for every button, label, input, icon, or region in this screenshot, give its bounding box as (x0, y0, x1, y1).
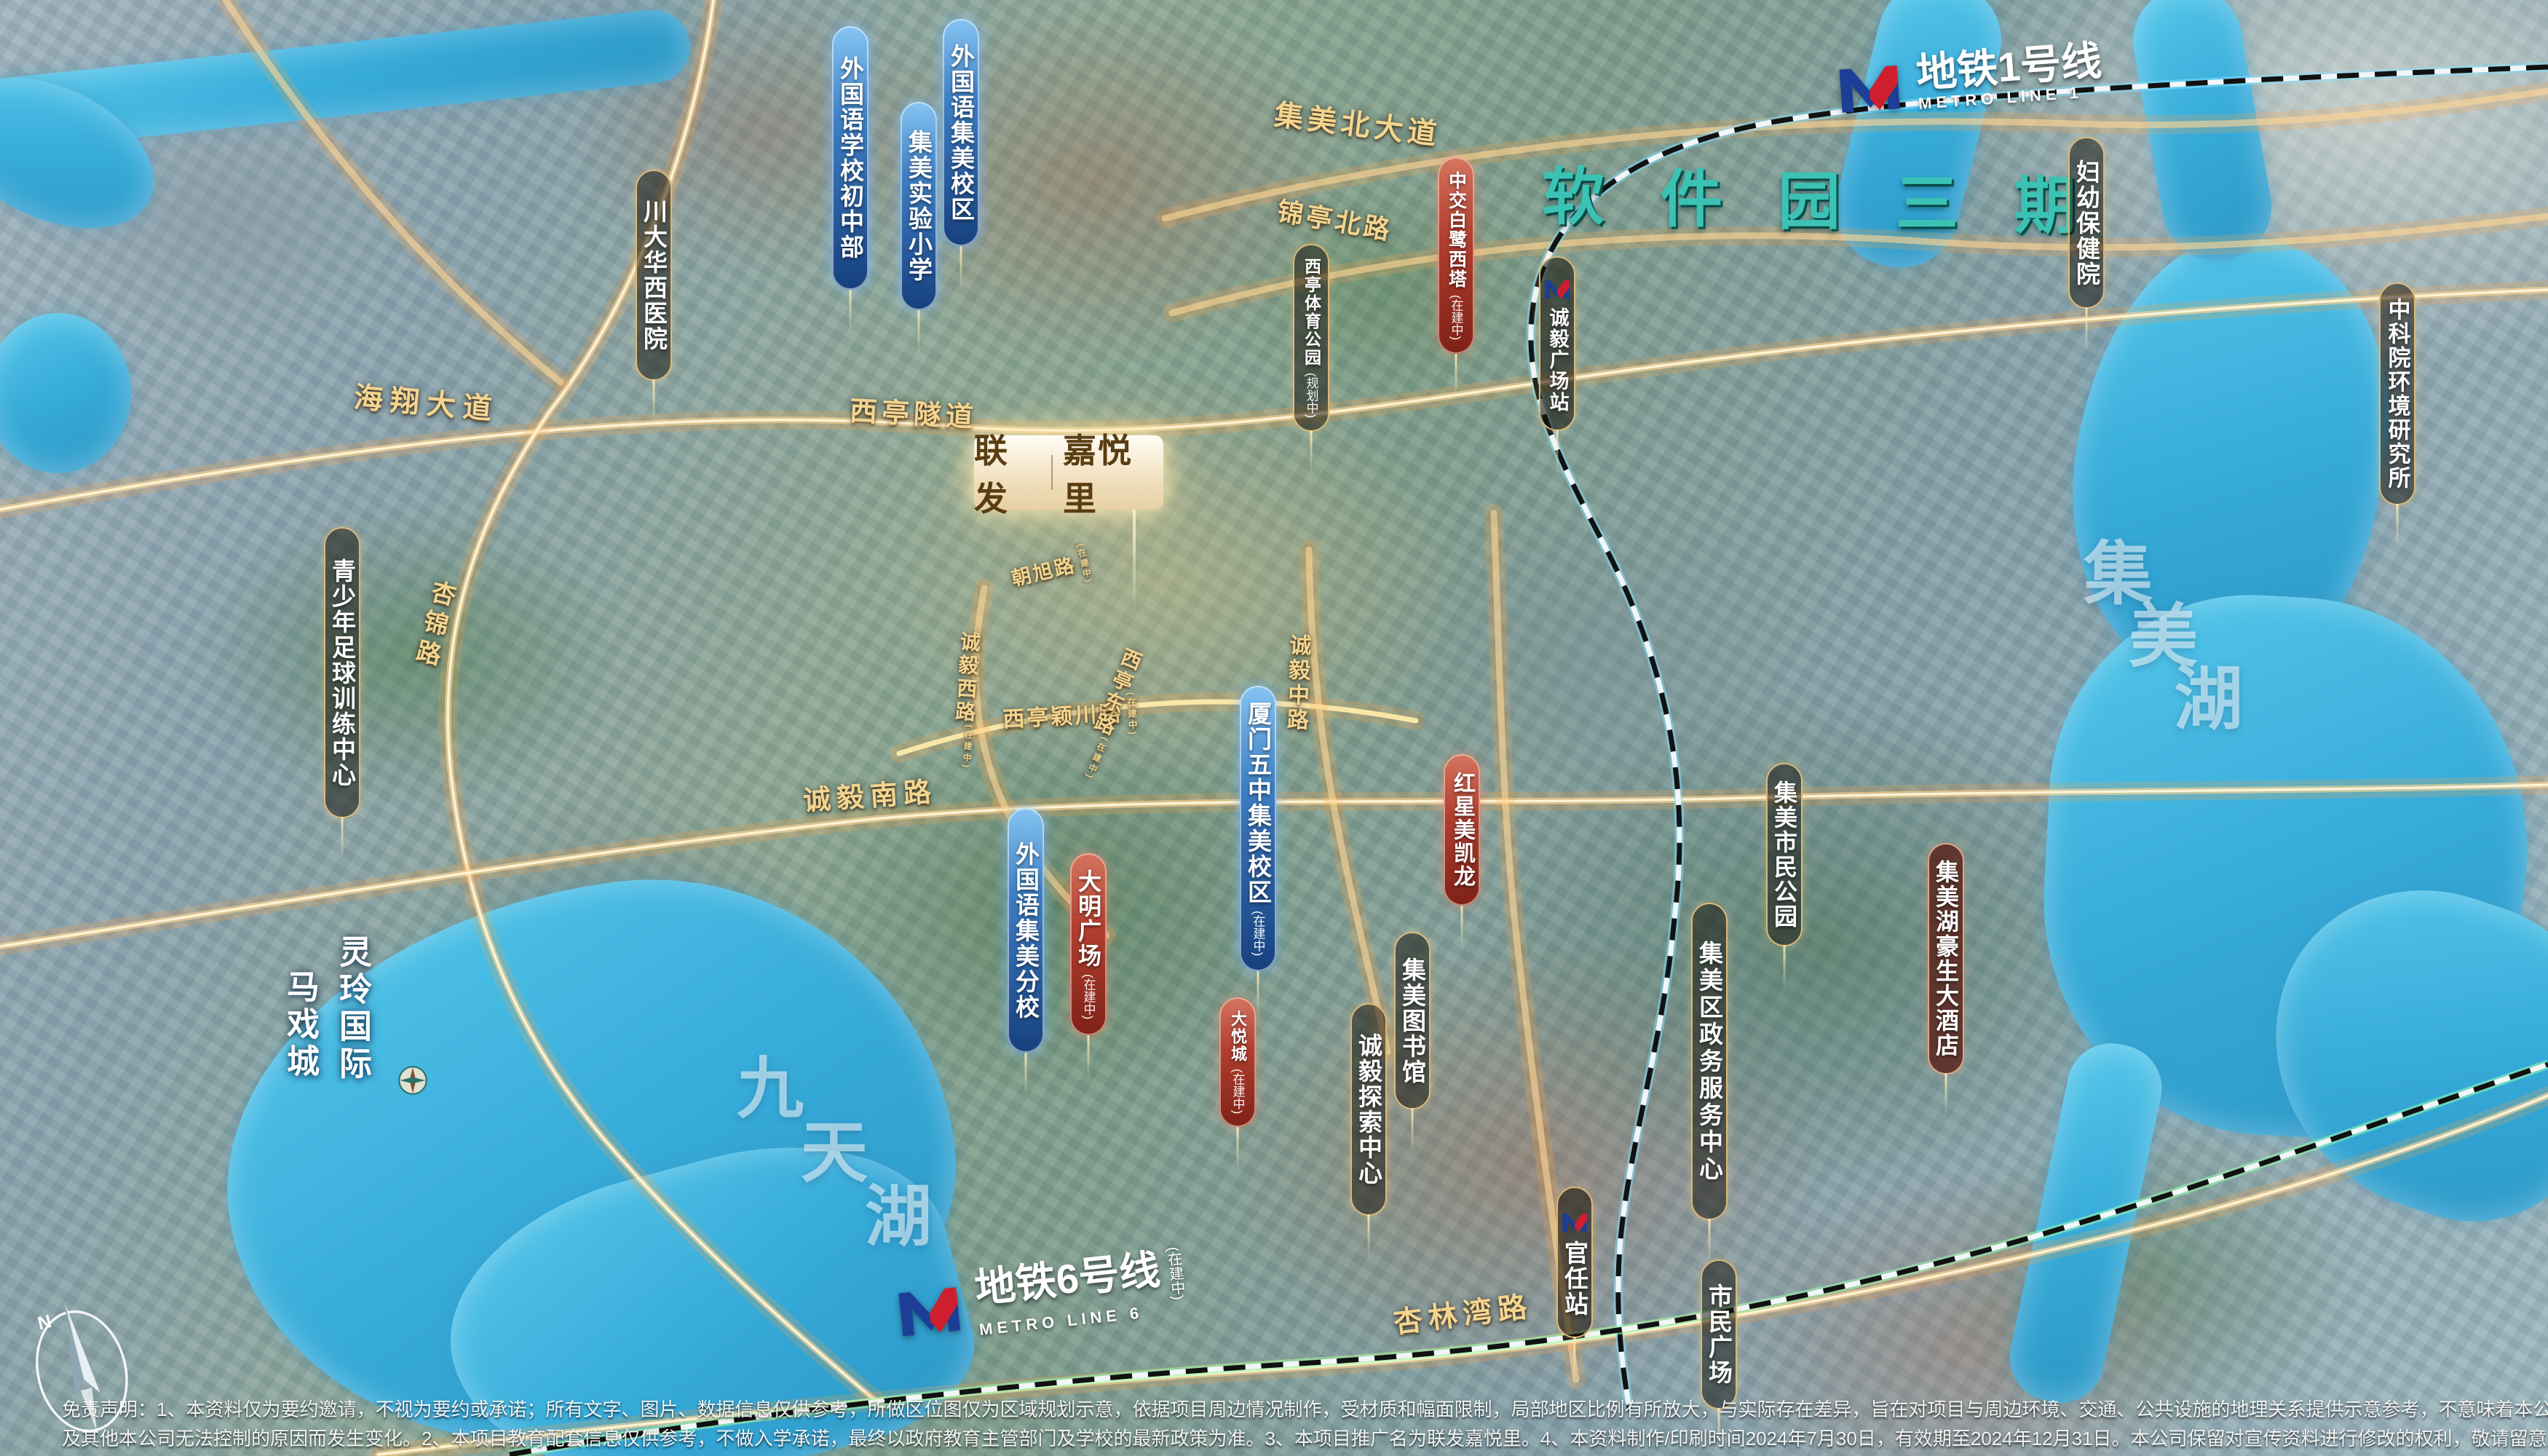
poi-label-text: 集美区政务服务中心 (1698, 941, 1722, 1183)
poi-label-集美市民公园: 集美市民公园 (1766, 763, 1803, 946)
poi-label-text: 集美实验小学 (907, 130, 931, 282)
poi-label-text: 集美湖豪生大酒店 (1934, 860, 1958, 1058)
poi-label-官任站: 官任站 (1556, 1187, 1593, 1338)
logo-divider (1051, 455, 1053, 490)
poi-label-text: 妇幼保健院 (2075, 159, 2099, 287)
poi-label-中科院环境研究所: 中科院环境研究所 (2379, 282, 2416, 505)
northwest-road (226, 0, 561, 382)
poi-status-text: (在建中) (1252, 911, 1265, 956)
disclaimer-line-1: 免责声明：1、本资料仅为要约邀请，不视为要约或承诺；所有文字、图片、数据信息仅供… (62, 1395, 2548, 1422)
poi-label-text: 青少年足球训练中心 (331, 558, 355, 788)
poi-label-text: 大悦城 (1230, 1010, 1246, 1063)
field-compass-rose-icon (397, 1064, 429, 1096)
area-watermark-九天湖: 九 (737, 1056, 804, 1123)
poi-status-text: (在建中) (1450, 295, 1463, 340)
poi-label-外国语学校初中部: 外国语学校初中部 (832, 26, 869, 290)
poi-label-红星美凯龙: 红星美凯龙 (1444, 754, 1480, 906)
area-watermark-软件园三期: 园 (1778, 170, 1840, 233)
poi-label-诚毅探索中心: 诚毅探索中心 (1350, 1003, 1387, 1216)
area-watermark-软件园三期: 软 (1542, 166, 1605, 229)
metro-logo-icon (1832, 52, 1906, 119)
poi-label-诚毅广场站: 诚毅广场站 (1539, 256, 1575, 431)
road-label-诚毅中路: 诚毅中路 (1283, 633, 1309, 733)
poi-label-text: 中交白鹭西塔 (1447, 171, 1465, 289)
poi-label-text: 集美市民公园 (1773, 780, 1796, 929)
poi-status-text: (在建中) (1232, 1069, 1244, 1114)
poi-label-大明广场: 大明广场(在建中) (1070, 853, 1107, 1035)
poi-label-中交白鹭西塔: 中交白鹭西塔(在建中) (1438, 157, 1474, 354)
poi-label-text: 西亭体育公园 (1303, 258, 1320, 367)
road-label-马戏城: 马戏城 (284, 970, 317, 1081)
aerial-masterplan-map: 联发 嘉悦里 地铁1号线 METRO LINE 1 地铁6号线 (在建中) ME… (0, 0, 2548, 1456)
road-status-text: (在建中) (1125, 692, 1137, 737)
area-watermark-软件园三期: 期 (2014, 175, 2076, 237)
project-name: 嘉悦里 (1063, 424, 1163, 521)
area-watermark-软件园三期: 件 (1660, 168, 1722, 231)
poi-label-text: 市民广场 (1707, 1283, 1731, 1385)
poi-status-text: (在建中) (1083, 974, 1095, 1019)
poi-label-集美区政务服务中心: 集美区政务服务中心 (1691, 903, 1728, 1220)
poi-label-外国语集美分校: 外国语集美分校 (1008, 808, 1044, 1053)
poi-label-text: 官任站 (1563, 1241, 1587, 1317)
poi-label-text: 集美图书馆 (1401, 957, 1425, 1085)
poi-label-集美湖豪生大酒店: 集美湖豪生大酒店 (1928, 843, 1964, 1075)
poi-label-外国语集美校区: 外国语集美校区 (943, 19, 979, 246)
area-watermark-集美湖: 湖 (2174, 665, 2243, 735)
poi-status-text: (规划中) (1305, 373, 1318, 418)
poi-label-text: 外国语集美校区 (949, 44, 973, 222)
road-label-西亭隧道: 西亭隧道 (849, 397, 978, 432)
project-site-beam (1133, 510, 1136, 612)
metro-logo-icon (892, 1274, 967, 1343)
metro-logo-icon (1560, 1208, 1589, 1235)
poi-label-text: 中科院环境研究所 (2386, 298, 2409, 490)
poi-label-青少年足球训练中心: 青少年足球训练中心 (324, 527, 360, 818)
metro-logo-icon (1543, 275, 1572, 301)
poi-label-text: 川大华西医院 (642, 199, 666, 352)
poi-label-text: 厦门五中集美校区 (1246, 701, 1270, 905)
poi-label-text: 外国语学校初中部 (839, 56, 863, 260)
poi-label-妇幼保健院: 妇幼保健院 (2068, 137, 2105, 309)
area-watermark-九天湖: 天 (801, 1120, 868, 1187)
poi-label-市民广场: 市民广场 (1701, 1259, 1737, 1409)
road-label-灵玲国际: 灵玲国际 (336, 935, 369, 1083)
poi-label-text: 大明广场 (1077, 869, 1100, 968)
compass-north-label: N (36, 1311, 54, 1334)
project-logo: 联发 嘉悦里 (974, 435, 1163, 510)
project-brand: 联发 (974, 424, 1041, 521)
poi-label-大悦城: 大悦城(在建中) (1219, 997, 1256, 1127)
disclaimer-line-2: 及其他本公司无法控制的原因而发生变化。2、本项目教育配套信息仅供参考，不做入学承… (62, 1424, 2548, 1451)
poi-label-text: 外国语集美分校 (1014, 842, 1038, 1020)
poi-label-text: 诚毅探索中心 (1357, 1033, 1381, 1186)
poi-label-text: 诚毅广场站 (1548, 307, 1567, 413)
poi-label-厦门五中集美校区: 厦门五中集美校区(在建中) (1240, 686, 1276, 971)
poi-label-川大华西医院: 川大华西医院 (636, 170, 672, 381)
area-watermark-九天湖: 湖 (865, 1184, 932, 1251)
poi-label-集美实验小学: 集美实验小学 (901, 102, 937, 310)
poi-label-集美图书馆: 集美图书馆 (1394, 932, 1431, 1109)
area-watermark-软件园三期: 三 (1896, 173, 1958, 235)
poi-label-text: 红星美凯龙 (1451, 772, 1473, 888)
metro-line-1-track (1531, 67, 2548, 1409)
poi-label-西亭体育公园: 西亭体育公园(规划中) (1293, 244, 1329, 432)
